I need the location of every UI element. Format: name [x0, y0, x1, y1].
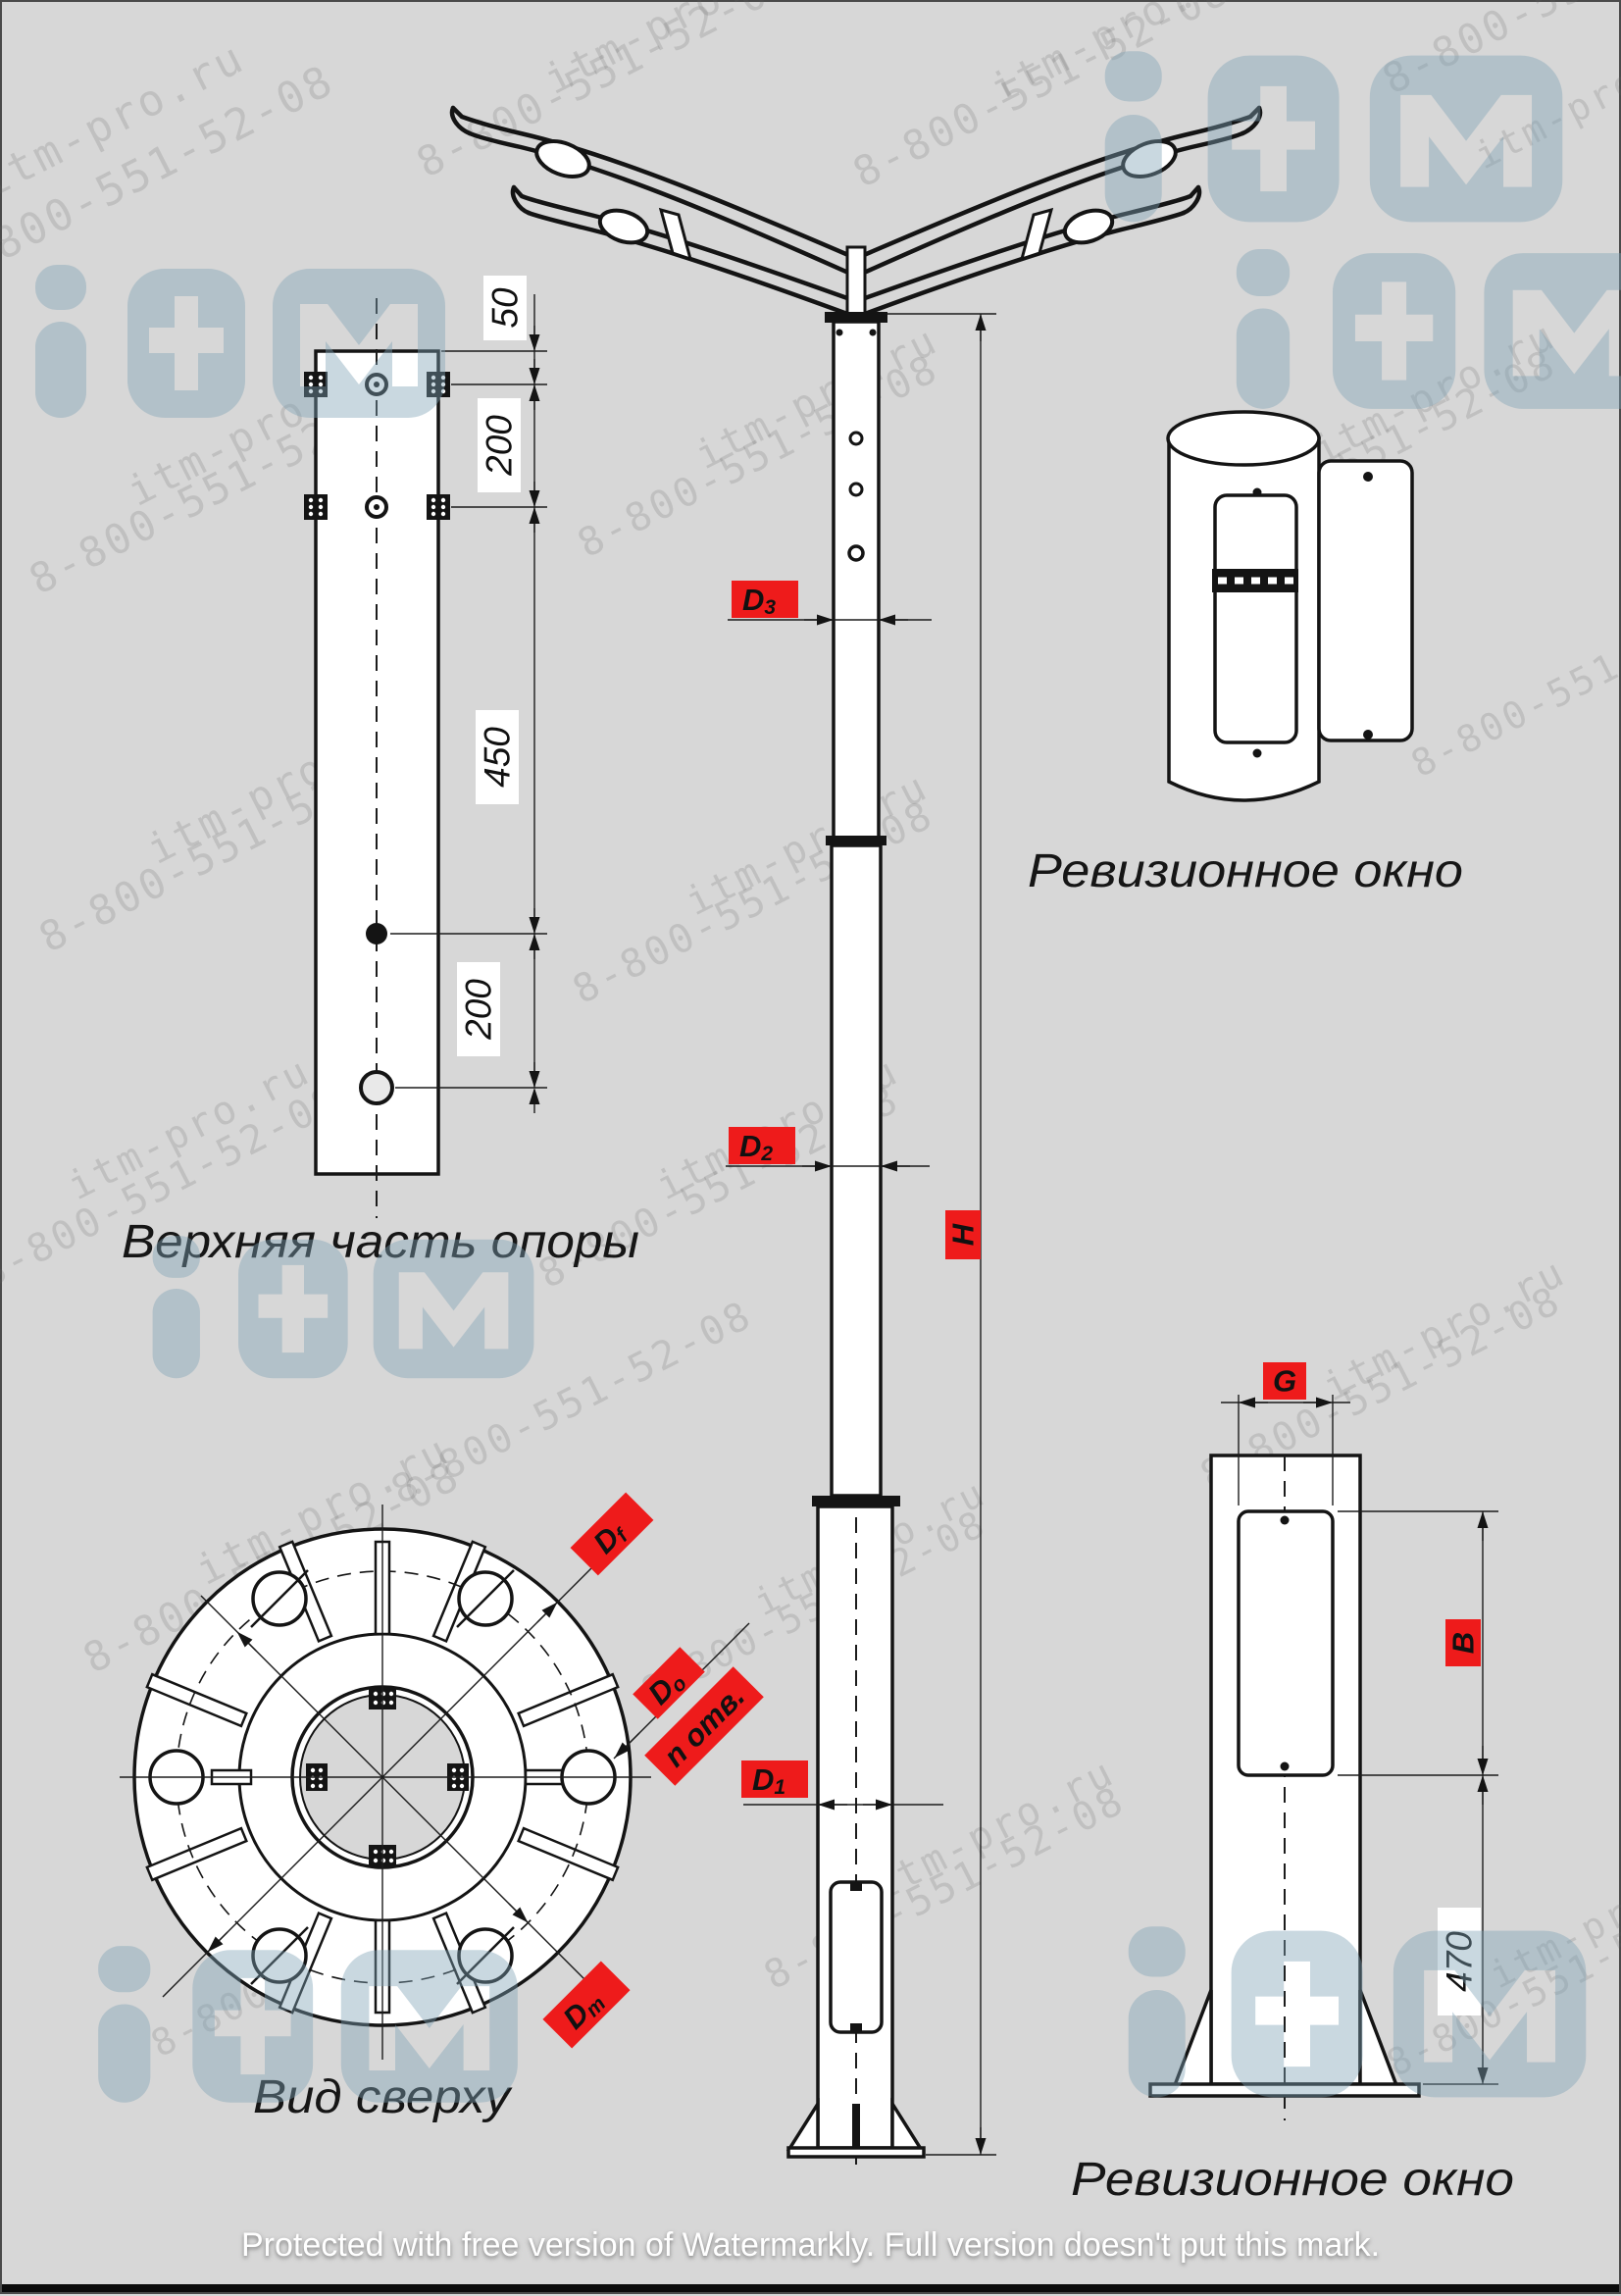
label-h: H	[945, 1210, 981, 1259]
window-cover-plate	[1319, 461, 1412, 740]
watermarkly-protection-text: Protected with free version of Watermark…	[2, 2226, 1619, 2277]
lamp-socket	[1060, 205, 1116, 249]
label-d2: D2	[729, 1127, 795, 1165]
gusset-left	[1175, 1990, 1211, 2085]
label-d3: D3	[732, 581, 798, 619]
base-plate	[788, 2148, 924, 2157]
pole-middle-section	[832, 845, 881, 1496]
dim-470: 470	[1438, 1908, 1481, 2015]
label-d1: D1	[741, 1760, 808, 1799]
cable-hole	[850, 484, 862, 495]
clamp-row-1	[304, 372, 450, 397]
gusset-right	[1360, 1990, 1396, 2085]
arms-right	[864, 108, 1260, 314]
dim-50: 50	[483, 276, 527, 340]
cylinder-top	[1168, 412, 1319, 465]
dim-450-value: 450	[478, 727, 518, 788]
pole-top-section	[834, 322, 879, 839]
upper-plate-view: 50 200 450 200 Верхняя часть опоры	[122, 276, 639, 1268]
inspection-window-front-view: 470 Ревизионное окно	[1071, 1395, 1514, 2206]
dim-50-value: 50	[485, 287, 526, 329]
pole-inspection-opening	[831, 1882, 882, 2032]
plate-hole-filled	[366, 923, 387, 944]
svg-text:B: B	[1446, 1632, 1481, 1654]
dim-200a: 200	[478, 398, 521, 492]
base-rib	[852, 2104, 860, 2149]
pole-drawing-svg: 50 200 450 200 Верхняя часть опоры	[2, 2, 1621, 2296]
arm-stem	[847, 247, 865, 316]
pole-elevation	[788, 312, 924, 2165]
caption-inspection-window-bottom: Ревизионное окно	[1071, 2154, 1514, 2206]
clamp-row-2	[304, 494, 450, 520]
base-gusset-right	[892, 2104, 921, 2149]
dim-200a-value: 200	[480, 415, 520, 477]
dim-200b-value: 200	[459, 979, 499, 1041]
window-opening	[1215, 495, 1296, 742]
lamp-socket	[1118, 134, 1181, 183]
dim-450: 450	[476, 710, 519, 804]
caption-inspection-window-top: Ревизионное окно	[1028, 845, 1463, 897]
caption-upper-part: Верхняя часть опоры	[122, 1216, 639, 1268]
dim-200b: 200	[457, 962, 500, 1056]
luminaire-arms	[452, 108, 1260, 316]
window-opening-front	[1239, 1511, 1333, 1775]
bottom-strip	[2, 2284, 1619, 2292]
technical-drawing-page: { "watermark": { "site": "itm-pro.ru", "…	[0, 0, 1621, 2294]
label-dm: Dm	[542, 1961, 630, 2048]
label-g: G	[1263, 1362, 1306, 1400]
flange-top-view: Вид сверху	[120, 1505, 749, 2123]
base-gusset-left	[789, 2104, 818, 2149]
svg-text:H: H	[946, 1223, 981, 1246]
cable-hole	[849, 546, 863, 560]
dim-470-value: 470	[1440, 1931, 1480, 1992]
svg-text:G: G	[1273, 1364, 1296, 1399]
plate-hole-open	[361, 1072, 392, 1103]
cable-hole	[850, 433, 862, 444]
caption-top-view: Вид сверху	[253, 2071, 513, 2123]
label-b: B	[1445, 1619, 1481, 1666]
label-df: Df	[571, 1493, 654, 1576]
inspection-window-cylinder-view: Ревизионное окно	[1028, 412, 1463, 897]
base-plate-front	[1150, 2084, 1419, 2096]
